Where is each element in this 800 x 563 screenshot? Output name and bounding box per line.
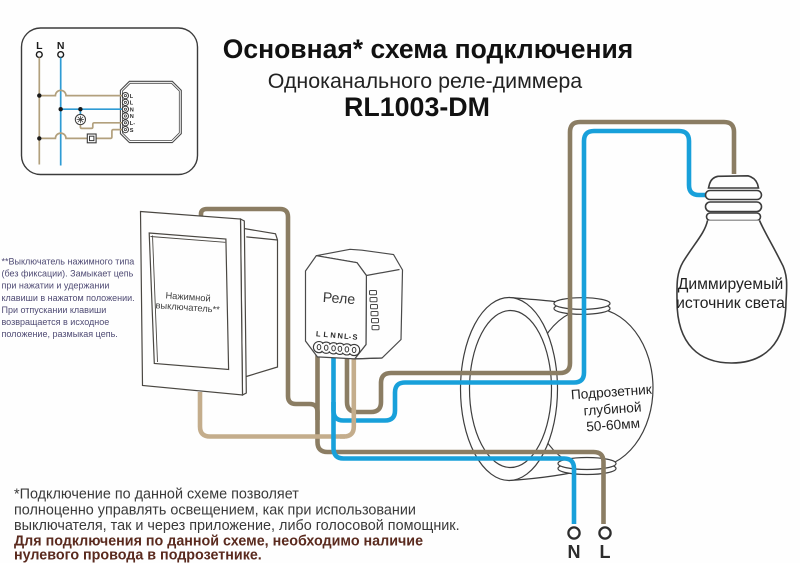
svg-text:возвращается в исходное: возвращается в исходное: [2, 317, 110, 327]
svg-text:Одноканального реле-диммера: Одноканального реле-диммера: [268, 69, 583, 93]
svg-text:положение, размыкая цепь.: положение, размыкая цепь.: [2, 329, 118, 339]
svg-text:При отпускании клавиши: При отпускании клавиши: [2, 305, 107, 315]
svg-text:(без фиксации). Замыкает цепь: (без фиксации). Замыкает цепь: [2, 269, 134, 279]
svg-text:нулевого провода в подрозетник: нулевого провода в подрозетнике.: [14, 548, 262, 563]
svg-text:N: N: [130, 107, 134, 113]
svg-text:полноценно управлять освещение: полноценно управлять освещением, как при…: [14, 502, 416, 518]
svg-text:N: N: [568, 542, 581, 562]
svg-text:выключателя, так и через прило: выключателя, так и через приложение, либ…: [14, 518, 460, 534]
svg-text:S: S: [352, 332, 358, 341]
svg-text:L: L: [36, 40, 43, 52]
svg-text:S: S: [130, 128, 134, 134]
svg-text:Основная* схема подключения: Основная* схема подключения: [223, 34, 634, 64]
svg-text:L-: L-: [130, 121, 135, 127]
svg-text:при нажатии и удержании: при нажатии и удержании: [2, 281, 110, 291]
svg-text:Реле: Реле: [322, 290, 356, 308]
svg-text:N: N: [57, 40, 65, 52]
svg-text:клавиши в нажатом положении.: клавиши в нажатом положении.: [2, 293, 135, 303]
svg-text:L: L: [130, 94, 134, 100]
svg-text:RL1003-DM: RL1003-DM: [344, 92, 490, 122]
svg-text:*Подключение по данной схеме п: *Подключение по данной схеме позволяет: [14, 487, 299, 503]
svg-text:N: N: [130, 114, 134, 120]
svg-text:**Выключатель нажимного типа: **Выключатель нажимного типа: [2, 257, 135, 267]
svg-text:L: L: [600, 542, 611, 562]
svg-text:N: N: [330, 331, 336, 340]
svg-text:L-: L-: [344, 332, 352, 342]
svg-text:Диммируемый: Диммируемый: [678, 276, 783, 293]
svg-text:N: N: [337, 331, 343, 340]
svg-text:L: L: [130, 101, 134, 107]
svg-text:источник света: источник света: [676, 295, 785, 312]
